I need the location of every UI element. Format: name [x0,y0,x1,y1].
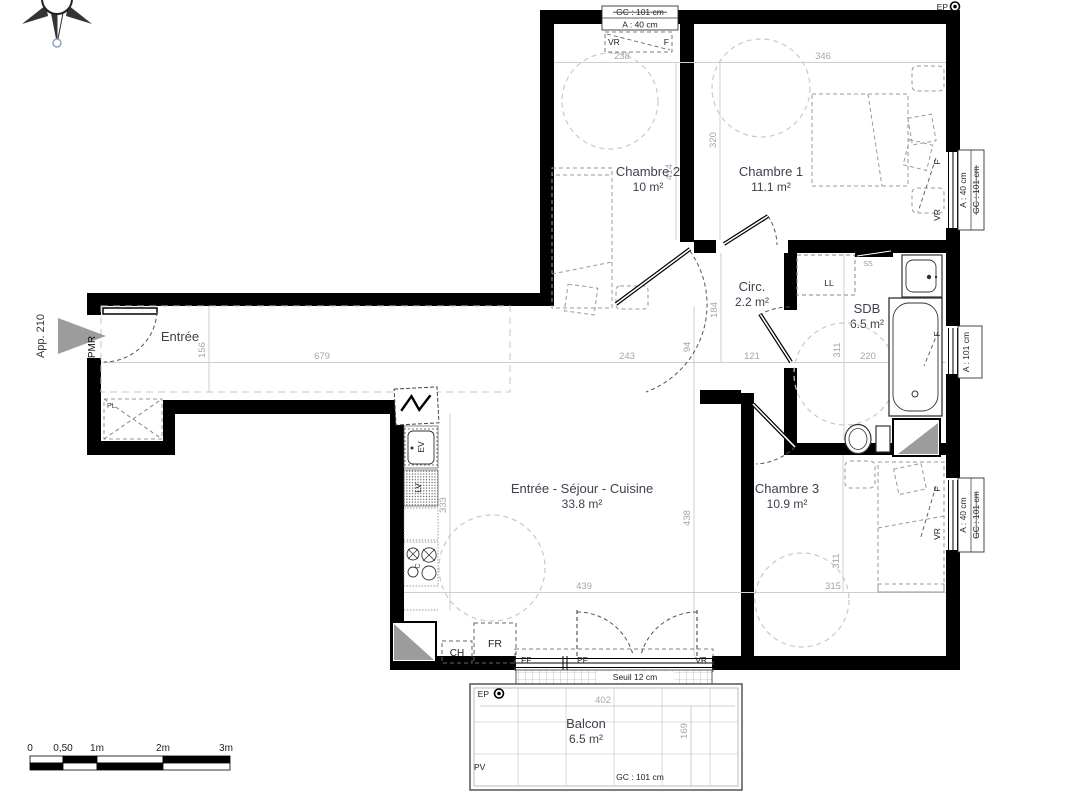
room-area-circ: 2.2 m² [735,295,769,309]
room-label-circ: Circ. [739,279,766,294]
ch-label: CH [450,648,464,659]
balcony: 402 169 Balcon 6.5 m² PV GC : 101 cm EP [470,684,742,790]
room-label-chambre1: Chambre 1 [739,164,803,179]
dim-438: 438 [682,510,693,526]
dim-679: 679 [314,351,330,362]
dim-315: 315 [825,581,841,592]
window-sdb-a: A : 101 cm [961,332,971,372]
room-area-chambre2: 10 m² [633,180,664,194]
window-top-f: F [664,37,669,47]
floor-plan: 238 346 320 414 679 243 121 220 156 94 1… [0,0,1068,800]
bay-ff-label: FF [521,655,531,665]
technical-shaft-sdb [893,419,940,456]
room-label-sdb: SDB [854,301,881,316]
balcony-gc-label: GC : 101 cm [616,772,664,782]
window-top-a: A : 40 cm [622,20,657,30]
dim-333: 333 [438,497,449,513]
window-ch1-a: A : 40 cm [958,172,968,207]
entry-door-leaf [103,308,157,314]
bay-vr-label: VR [695,655,707,665]
room-area-sejour: 33.8 m² [562,497,603,511]
room-label-chambre3: Chambre 3 [755,481,819,496]
room-area-chambre1: 11.1 m² [751,180,791,194]
ep-label-balcony: EP [478,689,490,699]
ll-label: LL [824,278,834,288]
kitchen-sink: EV [404,426,438,468]
seuil-label: Seuil 12 cm [613,672,657,682]
lv-label: LV [413,483,423,493]
dim-169: 169 [679,723,690,739]
dim-311-sdb: 311 [832,342,843,357]
window-ch3-a: A : 40 cm [958,497,968,532]
bathtub [889,298,942,416]
fr-label: FR [488,638,502,650]
floor-plan-drawing: 238 346 320 414 679 243 121 220 156 94 1… [0,0,1068,800]
cooktop: C [404,542,438,586]
window-ch1-vr: VR [932,209,942,221]
scale-0: 0 [27,743,33,754]
pmr-label: PMR [87,336,98,358]
dim-311-ch3: 311 [831,553,842,568]
dishwasher: LV [404,470,438,506]
toilet [845,425,890,454]
window-top-vr: VR [608,37,620,47]
dim-402: 402 [595,695,611,706]
dim-121: 121 [744,351,760,362]
scale-1m: 1m [90,743,104,754]
ep-label-top: EP [937,2,949,12]
scale-3m: 3m [219,743,233,754]
window-ch3-f: F [932,486,942,491]
ev-label: EV [416,441,426,453]
dim-243: 243 [619,351,635,362]
technical-shaft-living [392,622,436,662]
dim-156: 156 [197,342,208,358]
apartment-label: App. 210 [35,314,47,358]
dim-439: 439 [576,581,592,592]
scale-2m: 2m [156,743,170,754]
bay-pf-label: PF [577,655,588,665]
cooktop-label: C [415,563,422,568]
pl-label: PL [107,403,116,410]
dim-220: 220 [860,351,876,362]
pv-label: PV [474,762,486,772]
kitchen-counter [404,508,438,540]
window-ch1-f: F [932,159,942,164]
washbasin [902,255,942,297]
scale-050: 0,50 [53,743,73,754]
room-area-balcon: 6.5 m² [569,732,603,746]
room-label-balcon: Balcon [566,716,606,731]
window-ch3-vr: VR [932,528,942,540]
electrical-panel [394,387,439,425]
room-label-sejour: Entrée - Séjour - Cuisine [511,481,653,496]
threshold: Seuil 12 cm [516,670,712,684]
dim-320: 320 [708,132,719,148]
room-label-chambre2: Chambre 2 [616,164,680,179]
dim-184: 184 [709,302,720,318]
room-label-entree: Entrée [161,329,199,344]
dim-94: 94 [682,342,693,353]
room-area-chambre3: 10.9 m² [767,497,808,511]
dim-346: 346 [815,51,831,62]
ss-label: SS [863,261,873,268]
room-area-sdb: 6.5 m² [850,317,884,331]
